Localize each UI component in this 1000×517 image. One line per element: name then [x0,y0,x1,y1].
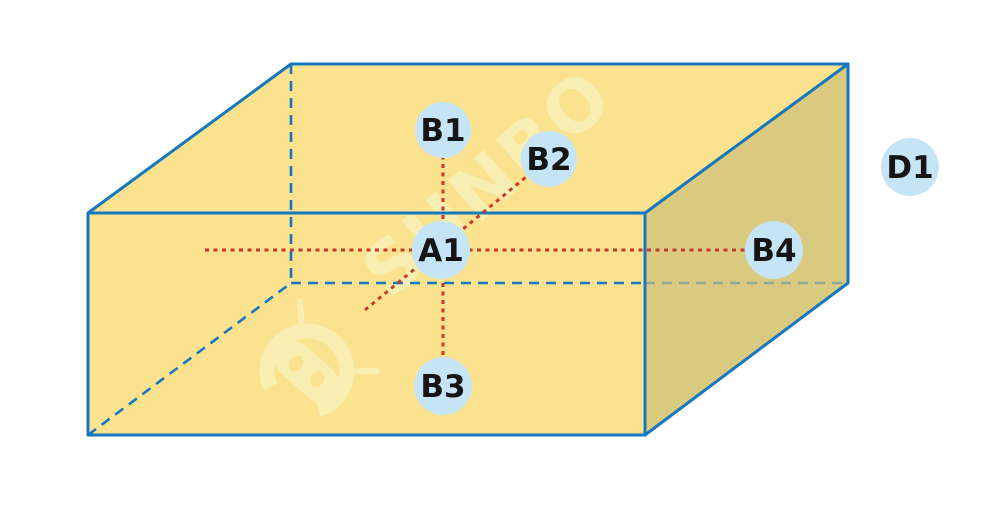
box-diagram: SUNBO B1 [0,0,1000,517]
point-b2-label: B2 [526,142,571,178]
point-b1[interactable]: B1 [415,102,471,158]
point-b4[interactable]: B4 [745,221,803,279]
point-a1[interactable]: A1 [412,221,470,279]
point-b3-label: B3 [420,369,465,405]
point-b2[interactable]: B2 [521,131,577,187]
point-b3[interactable]: B3 [414,357,472,415]
point-b4-label: B4 [751,233,796,269]
diagram-stage: SUNBO B1 [0,0,1000,517]
point-d1[interactable]: D1 [881,138,939,196]
point-a1-label: A1 [418,233,464,269]
point-d1-label: D1 [886,150,933,186]
point-b1-label: B1 [420,113,465,149]
